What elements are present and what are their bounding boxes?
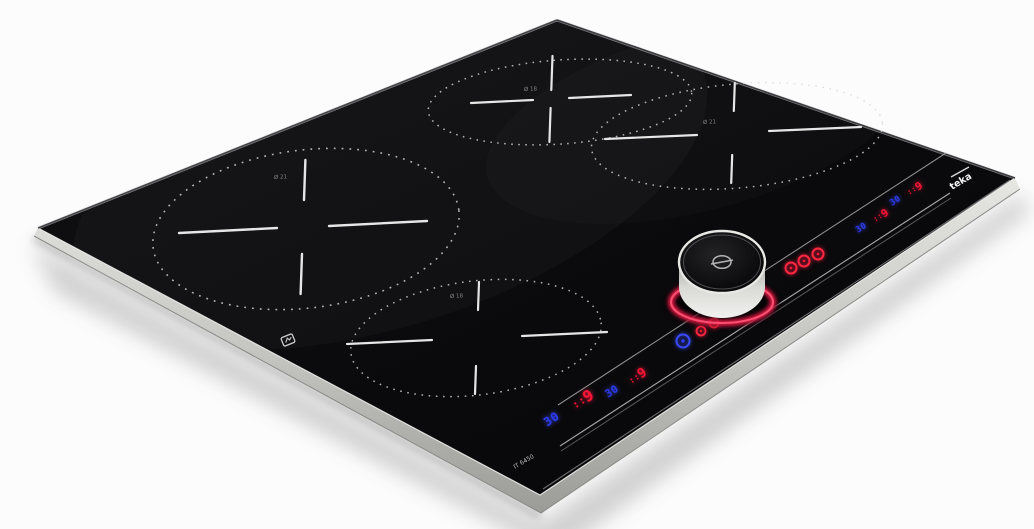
product-photo: Ø 18 Ø 21 Ø 21 Ø 18 (0, 0, 1034, 529)
zone-size-label: Ø 18 (524, 85, 538, 93)
induction-hob-photo: Ø 18 Ø 21 Ø 21 Ø 18 (0, 0, 1034, 529)
zone-size-label: Ø 18 (450, 292, 464, 300)
zone-size-label: Ø 21 (274, 173, 287, 181)
zone-size-label: Ø 21 (703, 118, 716, 126)
